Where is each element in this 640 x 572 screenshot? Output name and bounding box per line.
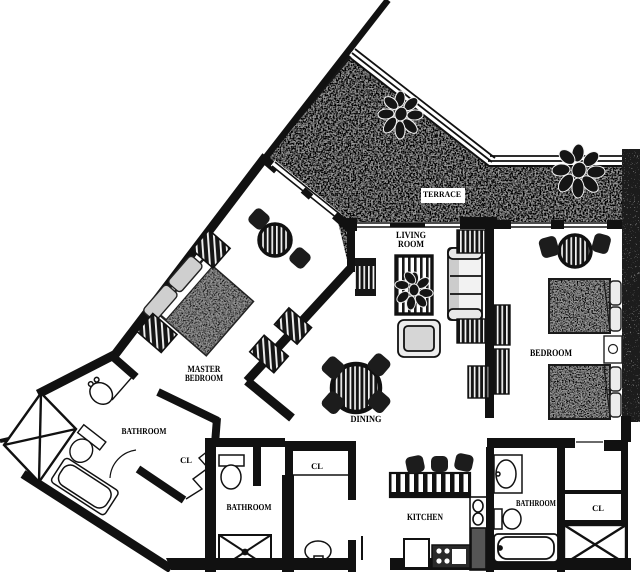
svg-text:BATHROOM: BATHROOM — [516, 498, 556, 508]
svg-text:KITCHEN: KITCHEN — [407, 513, 443, 523]
svg-text:CL: CL — [180, 455, 192, 465]
svg-text:CL: CL — [311, 461, 323, 471]
svg-text:BATHROOM: BATHROOM — [122, 426, 167, 436]
svg-text:CL: CL — [592, 503, 604, 513]
svg-text:DINING: DINING — [351, 415, 383, 425]
svg-text:BEDROOM: BEDROOM — [185, 374, 223, 384]
svg-text:ROOM: ROOM — [398, 240, 424, 250]
svg-text:BATHROOM: BATHROOM — [227, 502, 272, 512]
svg-text:TERRACE: TERRACE — [423, 189, 461, 199]
svg-text:BEDROOM: BEDROOM — [530, 348, 572, 359]
